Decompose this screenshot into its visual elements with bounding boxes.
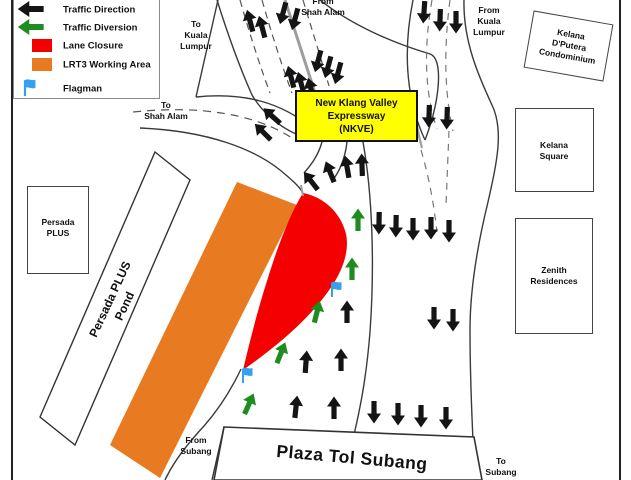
traffic-direction-arrow xyxy=(367,401,381,424)
traffic-direction-arrow xyxy=(340,301,354,324)
traffic-direction-arrow xyxy=(372,212,386,235)
legend-item-lane-closure: Lane Closure xyxy=(63,41,123,52)
persada-plus-building xyxy=(27,186,89,274)
traffic-direction-arrow xyxy=(334,349,348,372)
traffic-direction-arrow xyxy=(446,309,460,332)
road-edge xyxy=(352,142,372,443)
legend-item-traffic-direction: Traffic Direction xyxy=(63,4,135,15)
traffic-direction-arrow xyxy=(389,215,403,238)
nkve-callout: New Klang Valley Expressway (NKVE) xyxy=(295,90,418,142)
traffic-direction-arrow xyxy=(391,403,405,426)
road-edge xyxy=(464,0,498,480)
traffic-direction-arrow xyxy=(288,395,304,419)
traffic-direction-arrow xyxy=(259,103,285,128)
flagman-icon xyxy=(243,368,253,383)
toll-plaza-building xyxy=(214,427,482,480)
traffic-direction-arrow xyxy=(439,407,453,430)
working-area-swatch xyxy=(32,58,52,71)
traffic-direction-arrow xyxy=(406,218,420,241)
traffic-diversion-diagram: Traffic Direction Traffic Diversion Lane… xyxy=(0,0,631,480)
legend-item-traffic-diversion: Traffic Diversion xyxy=(63,22,137,33)
flagman-icon xyxy=(332,282,342,297)
traffic-direction-arrow xyxy=(414,405,428,428)
legend-panel: Traffic Direction Traffic Diversion Lane… xyxy=(13,0,160,99)
road-edge xyxy=(196,0,218,97)
traffic-direction-arrow xyxy=(433,9,448,32)
kelana-square-building xyxy=(515,108,594,192)
traffic-diversion-arrow xyxy=(345,258,359,281)
lane-closure-swatch xyxy=(32,39,52,52)
legend-item-flagman: Flagman xyxy=(63,84,102,95)
legend-item-working-area: LRT3 Working Area xyxy=(63,59,151,70)
traffic-direction-arrow xyxy=(250,119,276,145)
traffic-diversion-arrow xyxy=(351,209,365,232)
zenith-residences-building xyxy=(515,218,593,334)
traffic-direction-arrow xyxy=(449,11,463,34)
lane-dash xyxy=(446,131,449,206)
traffic-diversion-arrow xyxy=(238,391,260,417)
traffic-direction-arrow xyxy=(327,397,341,420)
traffic-direction-arrow xyxy=(442,220,456,243)
lane-fan xyxy=(304,142,322,173)
traffic-direction-arrow xyxy=(427,307,441,330)
traffic-direction-arrow xyxy=(416,1,432,24)
traffic-direction-arrow xyxy=(440,107,455,130)
traffic-direction-arrow xyxy=(298,350,314,373)
guardrail-stub xyxy=(301,185,303,196)
